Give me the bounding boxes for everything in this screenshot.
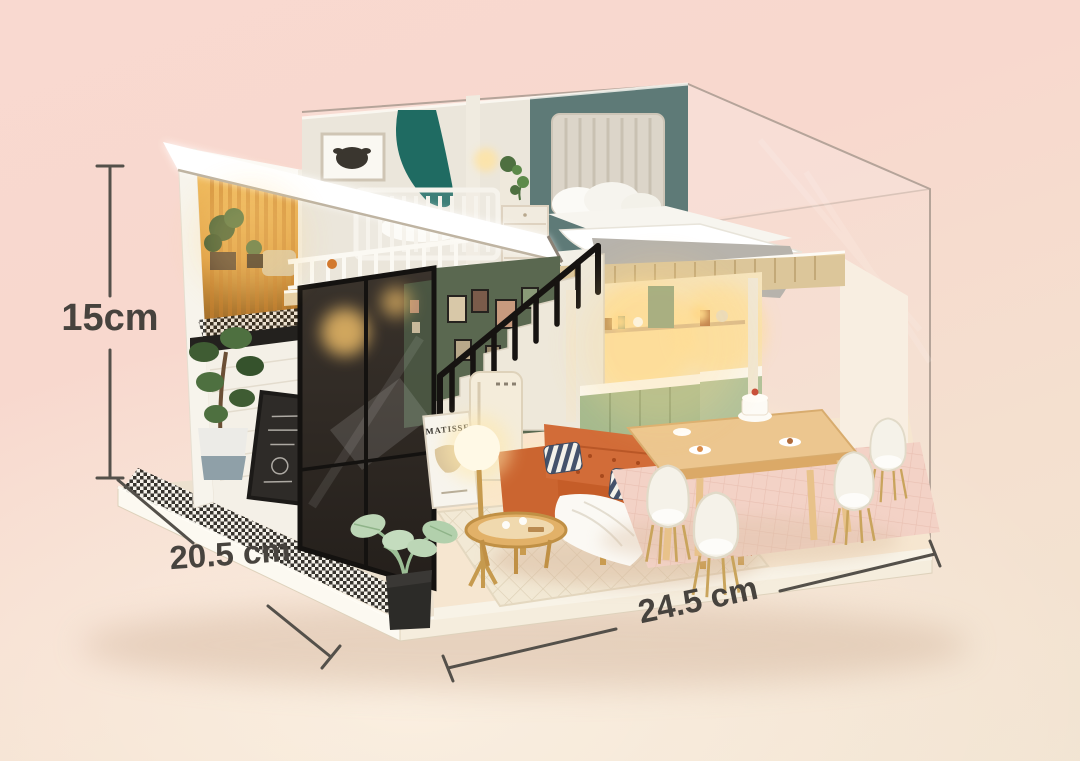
product-photo-stage: MATISSE xyxy=(0,0,1080,761)
striped-pillow xyxy=(543,442,583,475)
pumpkin-decor xyxy=(327,259,337,269)
cow-art-print xyxy=(322,134,384,180)
height-dimension-label: 15cm xyxy=(58,299,162,339)
dollhouse-illustration: MATISSE xyxy=(0,0,1080,761)
